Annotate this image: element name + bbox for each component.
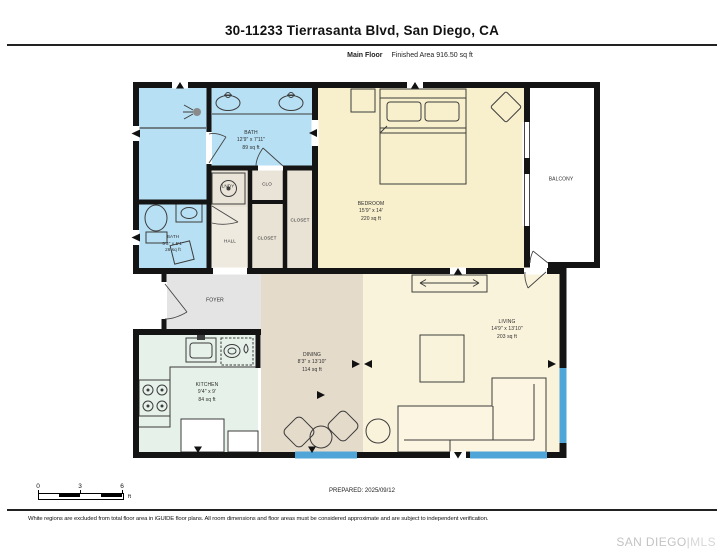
kitchen-cabinet-icon — [228, 431, 258, 452]
room-area: 89 sq ft — [237, 145, 265, 152]
room-label-bedroom: BEDROOM 15'9" x 14' 220 sq ft — [358, 201, 385, 223]
disclaimer-text: White regions are excluded from total fl… — [28, 516, 708, 522]
scale-bar-track — [38, 493, 124, 500]
room-name: CLOSET — [258, 236, 277, 243]
room-area: 114 sq ft — [298, 367, 327, 374]
stove-icon — [139, 380, 170, 416]
scale-bar-segment — [101, 494, 122, 497]
room-name: BEDROOM — [358, 201, 385, 208]
room-name: CLOSET — [291, 218, 310, 225]
scale-unit-label: ft — [128, 494, 131, 500]
room-dims: 5'3" x 5'1" — [162, 241, 183, 248]
room-dims: 9'4" x 9' — [196, 389, 219, 396]
room-dims: 12'9" x 7'11" — [237, 137, 265, 144]
room-name: HALL — [224, 239, 236, 246]
room-label-balcony: BALCONY — [549, 176, 574, 183]
room-name: FOYER — [206, 297, 224, 304]
prepared-date: PREPARED: 2025/09/12 — [0, 488, 724, 494]
room-area: 84 sq ft — [196, 397, 219, 404]
room-name: BALCONY — [549, 176, 574, 183]
room-name: DINING — [298, 352, 327, 359]
scale-bar-segment — [59, 494, 80, 497]
floorplan-drawing — [0, 0, 724, 560]
room-area: 203 sq ft — [491, 334, 523, 341]
room-name: BATH — [237, 130, 265, 137]
room-dims: 15'9" x 14' — [358, 208, 385, 215]
room-dims: 8'3" x 13'10" — [298, 359, 327, 366]
room-label-foyer: FOYER — [206, 297, 224, 304]
mls-watermark: SAN DIEGO|MLS — [616, 535, 716, 549]
footer-divider — [7, 509, 717, 511]
room-dims: 14'9" x 13'10" — [491, 326, 523, 333]
room-label-dining: DINING 8'3" x 13'10" 114 sq ft — [298, 352, 327, 374]
floorplan-page: 30-11233 Tierrasanta Blvd, San Diego, CA… — [0, 0, 724, 560]
room-name: LIVING — [491, 319, 523, 326]
room-area: 220 sq ft — [358, 216, 385, 223]
room-label-clo: CLO — [262, 182, 272, 189]
room-label-bath-main: BATH 12'9" x 7'11" 89 sq ft — [237, 130, 265, 152]
room-label-closet-right: CLOSET — [291, 218, 310, 225]
room-label-kitchen: KITCHEN 9'4" x 9' 84 sq ft — [196, 382, 219, 404]
room-name: BATH — [162, 234, 183, 241]
watermark-primary: SAN DIEGO — [616, 535, 686, 549]
room-label-closet-left: CLOSET — [258, 236, 277, 243]
watermark-secondary: MLS — [690, 535, 716, 549]
room-name: CLO — [262, 182, 272, 189]
room-label-hall: HALL — [224, 239, 236, 246]
room-label-bath-small: BATH 5'3" x 5'1" 26 sq ft — [162, 234, 183, 254]
room-name: KITCHEN — [196, 382, 219, 389]
room-label-living: LIVING 14'9" x 13'10" 203 sq ft — [491, 319, 523, 341]
room-label-lndy: LNDY — [222, 184, 235, 191]
room-name: LNDY — [222, 184, 235, 191]
room-area: 26 sq ft — [162, 247, 183, 254]
fridge-icon — [181, 419, 224, 452]
